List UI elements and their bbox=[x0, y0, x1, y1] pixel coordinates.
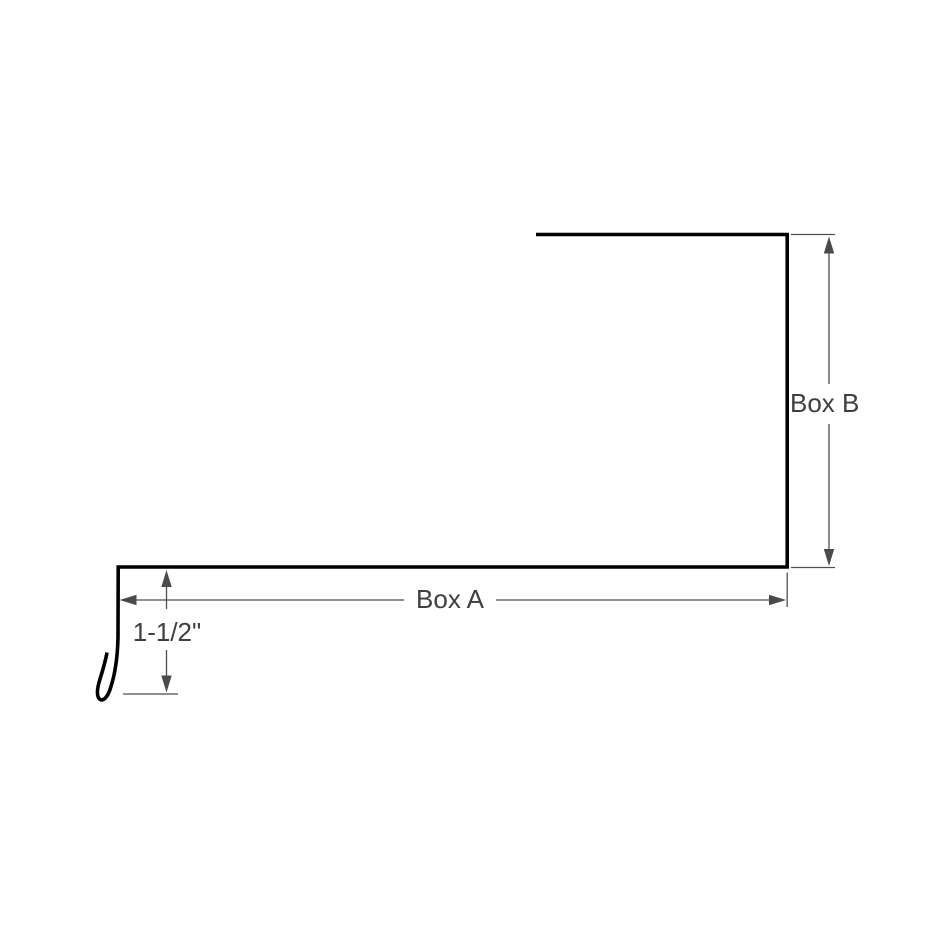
profile-diagram-svg: Box B Box A 1-1/2" bbox=[0, 0, 937, 936]
box-a-arrow-left-icon bbox=[120, 595, 137, 605]
box-a-label: Box A bbox=[416, 584, 485, 614]
dimension-hem: 1-1/2" bbox=[123, 570, 201, 694]
box-b-arrow-up-icon bbox=[824, 237, 834, 254]
dimension-box-a: Box A bbox=[120, 573, 788, 615]
hem-arrow-down-icon bbox=[161, 676, 171, 693]
box-a-arrow-right-icon bbox=[769, 595, 786, 605]
hem-arrow-up-icon bbox=[161, 570, 171, 587]
box-b-arrow-down-icon bbox=[824, 549, 834, 566]
hem-label: 1-1/2" bbox=[133, 617, 202, 647]
box-b-label: Box B bbox=[790, 388, 859, 418]
drawing-canvas: Box B Box A 1-1/2" bbox=[0, 0, 937, 936]
dimension-box-b: Box B bbox=[790, 235, 859, 568]
